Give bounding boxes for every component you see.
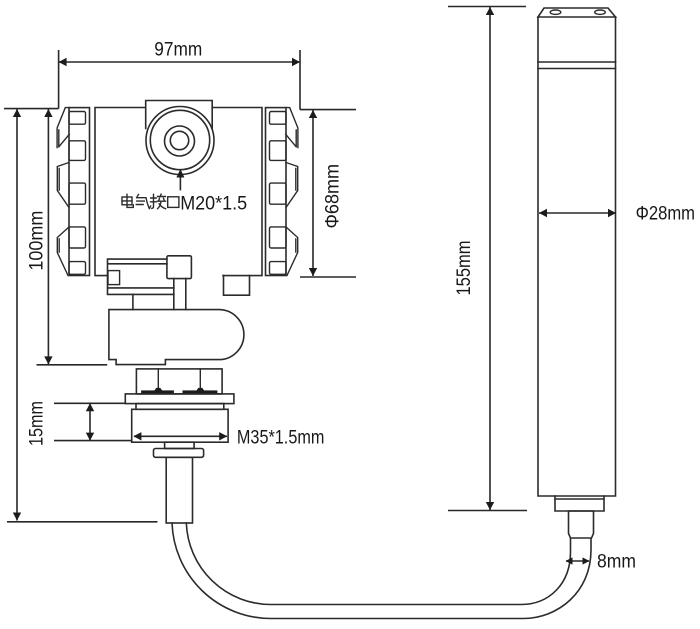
svg-text:15mm: 15mm [26, 401, 47, 446]
svg-text:97mm: 97mm [154, 40, 202, 61]
svg-text:Φ68mm: Φ68mm [321, 164, 343, 229]
svg-text:155mm: 155mm [453, 241, 475, 296]
svg-text:100mm: 100mm [27, 211, 48, 271]
svg-text:8mm: 8mm [597, 552, 636, 573]
svg-text:M20*1.5: M20*1.5 [180, 193, 247, 214]
svg-text:M35*1.5mm: M35*1.5mm [237, 428, 325, 449]
svg-text:Φ28mm: Φ28mm [636, 203, 695, 225]
